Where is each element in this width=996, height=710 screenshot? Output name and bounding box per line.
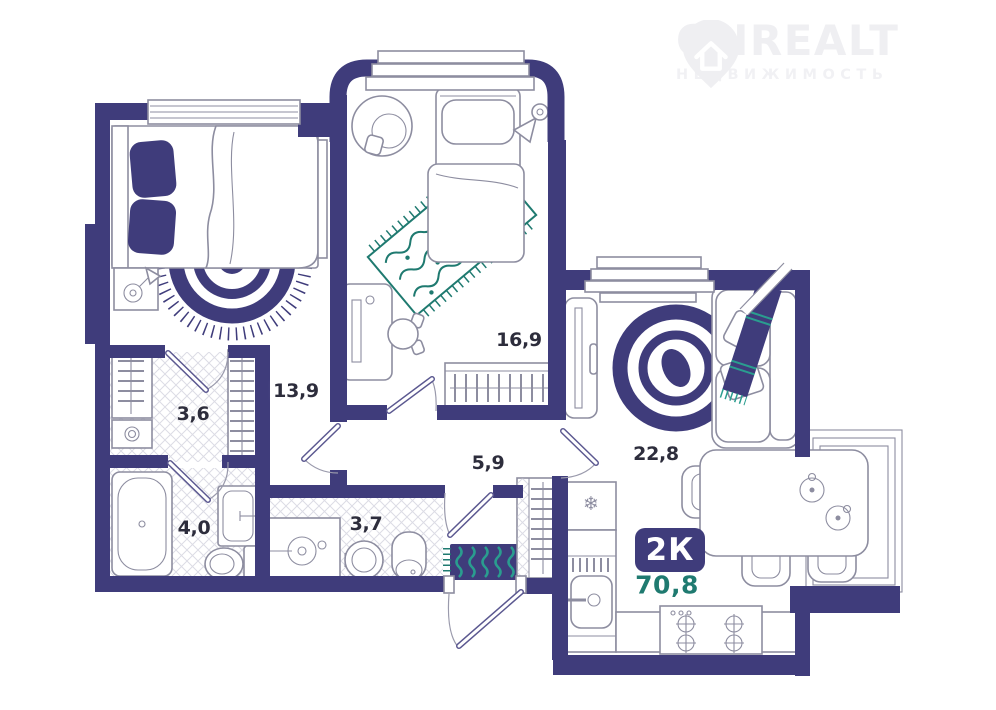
sofa	[712, 283, 800, 448]
room-area-bedroom1: 13,9	[273, 380, 319, 402]
floorplan-canvas: ONREALT НЕДВИЖИМОСТЬ 13,9 16,9 3,6 4,0 3…	[0, 0, 996, 710]
toilet-washroom	[392, 532, 426, 580]
unit-type-badge: 2К	[635, 528, 705, 572]
tv-unit	[565, 298, 597, 418]
total-area-label: 70,8	[635, 571, 699, 600]
room-area-bathroom: 4,0	[178, 517, 211, 539]
blanket	[428, 164, 524, 262]
bed-double	[112, 126, 318, 268]
pillow	[442, 100, 514, 144]
window-living	[585, 257, 714, 302]
door-bedroom1	[304, 426, 338, 473]
brand-pin-icon	[676, 20, 746, 94]
blanket	[206, 126, 318, 268]
room-area-washroom: 3,7	[350, 513, 383, 535]
room-area-bedroom2: 16,9	[496, 329, 542, 351]
rug-semicircle	[158, 260, 306, 334]
wardrobe	[445, 363, 555, 409]
radiator	[318, 140, 327, 258]
floorplan-drawing	[0, 0, 996, 710]
entrance-door	[444, 576, 526, 648]
doormat	[447, 544, 525, 580]
desk-chair	[388, 313, 425, 356]
stove	[660, 606, 762, 654]
desk	[342, 284, 392, 380]
round-chair	[352, 96, 412, 156]
bed-single	[428, 88, 524, 262]
window-bedroom2	[366, 51, 534, 90]
door-bedroom2	[389, 379, 436, 411]
kitchen-sink	[571, 576, 612, 628]
window-bedroom1	[148, 100, 300, 124]
sink-round	[345, 541, 383, 579]
fridge-snowflake-icon: ❄	[583, 493, 599, 515]
pillow	[129, 139, 178, 199]
pillow	[127, 198, 177, 255]
door-living	[561, 431, 596, 478]
nightstand	[114, 268, 160, 310]
sink-bathroom	[218, 486, 258, 546]
dining-table	[700, 450, 868, 556]
room-area-hallway: 5,9	[472, 452, 505, 474]
bathtub	[112, 472, 172, 576]
room-area-living: 22,8	[633, 443, 679, 465]
vanity-counter	[268, 518, 340, 582]
brand-watermark: ONREALT НЕДВИЖИМОСТЬ	[676, 20, 899, 83]
door-washroom	[445, 493, 491, 535]
room-area-wardrobe: 3,6	[177, 403, 210, 425]
